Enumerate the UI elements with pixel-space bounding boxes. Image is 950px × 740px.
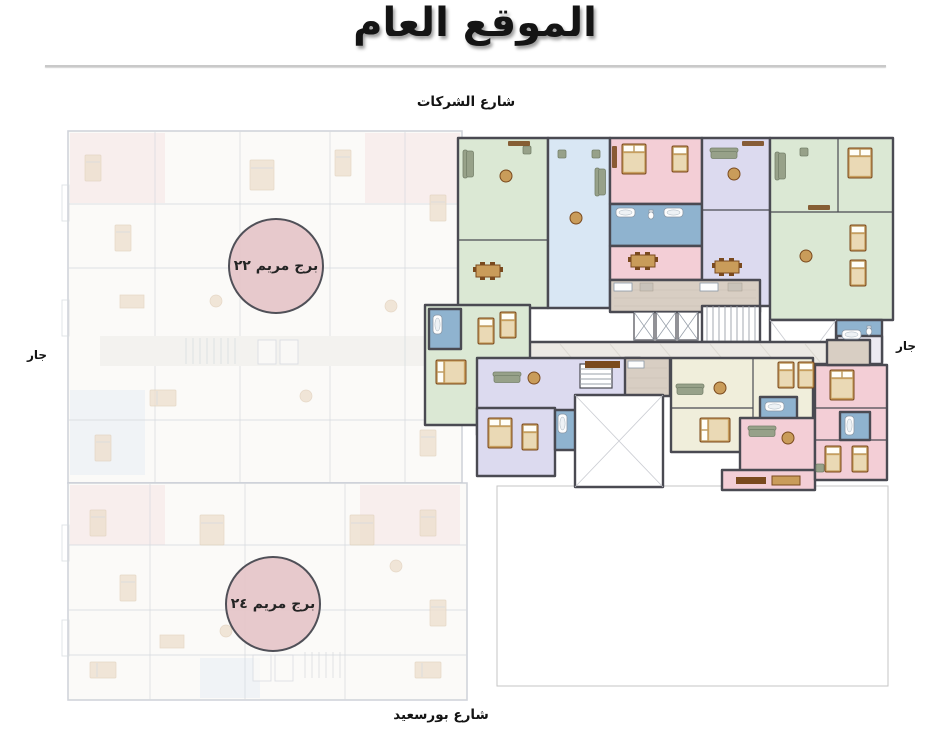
faded-bed-icon [90,662,116,678]
dining-table-icon [628,252,658,270]
faded-bed-icon [430,195,446,221]
faded-bed-icon [415,662,441,678]
bed-icon [522,424,538,450]
dining-table-icon [473,262,503,280]
bed-icon [850,260,866,286]
armchair-icon [523,146,531,154]
tower-badge-24: برج مريم ٢٤ [225,556,321,652]
dining-table-icon [712,258,742,276]
bathtub-icon [433,315,442,334]
cabinet-icon [742,141,764,146]
cabinet-icon [508,141,530,146]
toilet-icon [648,210,654,219]
armchair-icon [816,464,824,472]
bathtub-icon [765,402,784,411]
bed-icon [798,362,814,388]
bathtub-icon [842,330,861,339]
round-table-icon [728,168,740,180]
highlighted-building-plan [425,138,893,490]
bed-icon [488,418,512,448]
armchair-icon [558,150,566,158]
faded-bed-icon [120,575,136,601]
bed-icon [436,360,466,384]
cabinet-icon [808,205,830,210]
bed-icon [478,318,494,344]
bed-icon [622,144,646,174]
elevators [634,312,698,340]
bathtub-icon [616,208,635,217]
tower-badge-24-label: برج مريم ٢٤ [231,596,316,612]
round-table-icon [782,432,794,444]
faded-bed-icon [250,160,274,190]
room-bathroom-pink-east [840,412,870,440]
bed-icon [852,446,868,472]
bed-icon [830,370,854,400]
bathtub-icon [845,416,854,435]
cabinet-icon [736,477,766,484]
room-pink-south-strip [722,470,815,490]
faded-table-icon [300,390,312,402]
toilet-icon [866,326,872,335]
faded-bed-icon [95,435,111,461]
faded-bed-icon [350,515,374,545]
bed-icon [778,362,794,388]
sofa-icon [595,168,606,196]
faded-bed-icon [115,225,131,251]
cabinet-icon [585,361,620,368]
sofa-icon [710,148,738,159]
site-plan-drawing [0,0,950,740]
sofa-icon [748,426,776,437]
room-kitchen-east [827,340,870,365]
faded-bed-icon [335,150,351,176]
faded-bed-icon [420,430,436,456]
plot-yard [497,486,888,686]
cabinet-icon [612,146,617,168]
bed-icon [700,418,730,442]
sofa-icon [676,384,704,395]
faded-bed-icon [200,515,224,545]
bench-icon [772,476,800,485]
armchair-icon [800,148,808,156]
tower-badge-22-label: برج مريم ٢٢ [234,258,319,274]
faded-table-icon [210,295,222,307]
room-dining-pink [610,246,702,280]
bed-icon [672,146,688,172]
round-table-icon [500,170,512,182]
neighbor-label-right: جار [896,339,916,353]
staircase [702,306,760,342]
tower-badge-22: برج مريم ٢٢ [228,218,324,314]
round-table-icon [800,250,812,262]
round-table-icon [714,382,726,394]
neighbor-label-left: جار [27,348,47,362]
round-table-icon [528,372,540,384]
bed-icon [825,446,841,472]
bed-icon [848,148,872,178]
faded-table-icon [385,300,397,312]
bed-icon [850,225,866,251]
bathtub-icon [558,414,567,433]
armchair-icon [592,150,600,158]
round-table-icon [570,212,582,224]
site-plan-page: الموقع العام [0,0,950,740]
faded-bed-icon [85,155,101,181]
faded-bed-icon [150,390,176,406]
bed-icon [500,312,516,338]
street-label-top: شارع الشركات [0,94,932,110]
sofa-icon [463,150,474,178]
room-unit-green-east [770,138,893,320]
sofa-icon [493,372,521,383]
faded-bed-icon [420,510,436,536]
street-label-bottom: شارع بورسعيد [0,707,882,723]
faded-table-icon [390,560,402,572]
sofa-icon [775,152,786,180]
faded-bed-icon [90,510,106,536]
bathtub-icon [664,208,683,217]
faded-bed-icon [430,600,446,626]
